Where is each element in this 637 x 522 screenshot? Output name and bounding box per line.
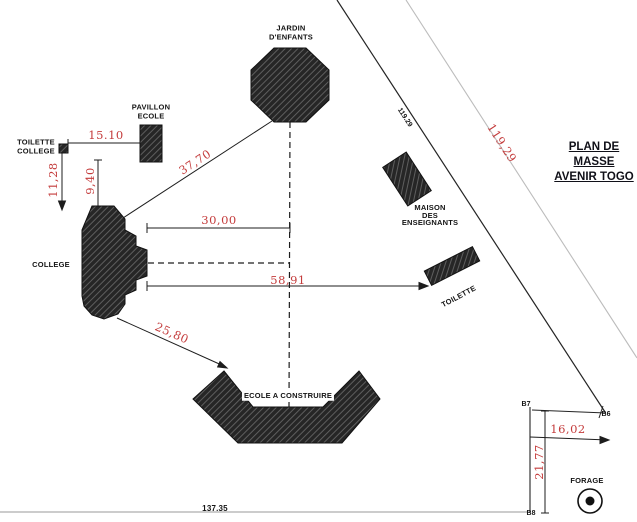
plan-title-line1: PLAN DE MASSE (548, 140, 637, 170)
jardin-label-line2: D'ENFANTS (269, 33, 313, 42)
buildings (59, 48, 480, 443)
maison-enseignants-building (383, 152, 432, 206)
forage-symbol (578, 489, 602, 513)
forage-dot-icon (586, 497, 595, 506)
dim-15-10: 15.10 (88, 129, 123, 141)
boundary-line-black (337, 0, 605, 412)
ecole-a-construire-label: ECOLE A CONSTRUIRE (242, 392, 334, 401)
dim-line-16-02 (530, 437, 608, 440)
vertical-axis-dashed (289, 122, 290, 407)
college-label: COLLEGE (32, 261, 70, 270)
plan-title: PLAN DE MASSE AVENIR TOGO (548, 140, 637, 185)
jardin-denfants-label: JARDIN D'ENFANTS (269, 25, 313, 42)
bottom-length-label: 137.35 (202, 505, 228, 514)
arrow-right-icon (419, 283, 428, 290)
dimension-lines (59, 121, 610, 513)
dim-21-77: 21,77 (533, 444, 545, 479)
dim-11-28: 11,28 (47, 162, 59, 197)
maison-label-line3: ENSEIGNANTS (402, 219, 458, 227)
toilette-building (424, 247, 479, 286)
dim-58-91: 58,91 (270, 274, 305, 286)
jardin-denfants-building (251, 48, 329, 122)
arrow-down-icon (59, 201, 66, 210)
point-b8-label: B8 (527, 510, 536, 519)
forage-label: FORAGE (570, 477, 603, 486)
point-b6-label: B6 (602, 411, 611, 420)
pavillon-ecole-building (140, 125, 162, 162)
dim-9-40: 9,40 (84, 167, 96, 195)
point-b7-label: B7 (522, 401, 531, 410)
plan-title-line2: AVENIR TOGO (548, 170, 637, 185)
pavillon-label-line2: ECOLE (132, 112, 170, 121)
toilette-college-building (59, 144, 68, 153)
site-plan-canvas: PLAN DE MASSE AVENIR TOGO JARDIN D'ENFAN… (0, 0, 637, 522)
dim-30-00: 30,00 (201, 214, 236, 226)
college-building (82, 206, 147, 319)
dim-16-02: 16,02 (550, 423, 585, 435)
pavillon-ecole-label: PAVILLON ECOLE (132, 104, 170, 121)
ecole-a-construire-building (193, 371, 380, 443)
toilette-college-label-line2: COLLEGE (17, 147, 55, 156)
maison-enseignants-label: MAISON DES ENSEIGNANTS (402, 204, 458, 227)
arrow-diagonal-icon (218, 362, 227, 368)
toilette-college-label: TOILETTE COLLEGE (17, 139, 55, 156)
arrow-right-icon (600, 437, 609, 444)
